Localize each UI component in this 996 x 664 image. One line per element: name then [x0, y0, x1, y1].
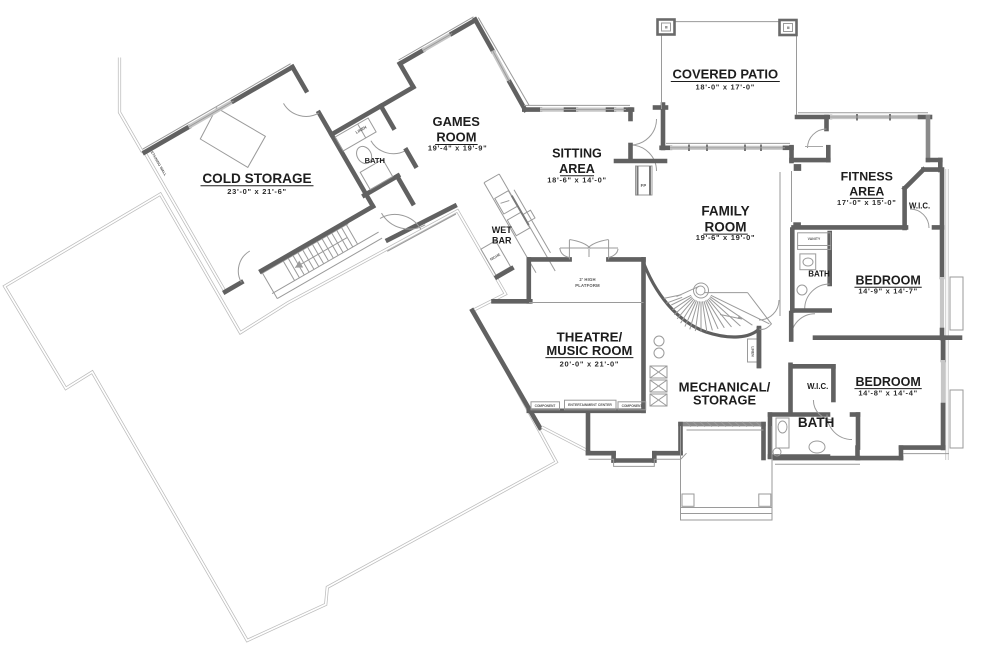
svg-text:COMPONENT: COMPONENT — [535, 404, 556, 408]
svg-text:ENTERTAINMENT CENTER: ENTERTAINMENT CENTER — [568, 403, 612, 407]
svg-text:BEDROOM: BEDROOM — [855, 375, 920, 389]
svg-text:FITNESS: FITNESS — [841, 169, 893, 183]
svg-text:FAMILY: FAMILY — [701, 204, 749, 219]
svg-text:VANITY: VANITY — [808, 237, 821, 241]
svg-text:STORAGE: STORAGE — [693, 393, 757, 408]
svg-text:W.I.C.: W.I.C. — [909, 202, 930, 211]
svg-text:2' HIGH: 2' HIGH — [579, 277, 595, 282]
svg-text:AREA: AREA — [849, 185, 884, 199]
svg-text:14'-8" x 14'-4": 14'-8" x 14'-4" — [858, 388, 918, 397]
svg-text:AREA: AREA — [559, 162, 595, 176]
svg-text:FP: FP — [641, 183, 647, 188]
svg-text:BATH: BATH — [365, 156, 385, 165]
svg-text:COVERED PATIO: COVERED PATIO — [672, 67, 778, 82]
svg-text:18'-6" x 14'-0": 18'-6" x 14'-0" — [547, 176, 607, 185]
svg-text:20'-0" x 21'-0": 20'-0" x 21'-0" — [560, 359, 620, 368]
svg-text:19'-4" x 19'-9": 19'-4" x 19'-9" — [428, 144, 488, 153]
svg-text:WET: WET — [492, 225, 512, 235]
svg-text:BATH: BATH — [808, 270, 830, 279]
svg-text:BEDROOM: BEDROOM — [855, 273, 920, 287]
svg-text:SITTING: SITTING — [552, 147, 602, 161]
svg-text:BATH: BATH — [798, 415, 835, 430]
svg-text:MUSIC ROOM: MUSIC ROOM — [546, 343, 632, 358]
svg-text:BAR: BAR — [492, 236, 512, 246]
svg-text:17'-0" x 15'-0": 17'-0" x 15'-0" — [837, 198, 897, 207]
svg-text:18'-0" x 17'-0": 18'-0" x 17'-0" — [696, 83, 756, 92]
svg-text:14'-9" x 14'-7": 14'-9" x 14'-7" — [858, 287, 918, 296]
svg-text:W.I.C.: W.I.C. — [807, 382, 828, 391]
svg-text:23'-0" x 21'-6": 23'-0" x 21'-6" — [227, 187, 287, 196]
svg-text:19'-6" x 19'-0": 19'-6" x 19'-0" — [696, 233, 756, 242]
svg-text:ROOM: ROOM — [436, 130, 476, 145]
svg-text:LINEN: LINEN — [751, 346, 755, 357]
svg-text:PLATFORM: PLATFORM — [575, 283, 600, 288]
svg-text:COMPONENT: COMPONENT — [622, 404, 643, 408]
svg-text:GAMES: GAMES — [433, 114, 481, 129]
svg-text:COLD STORAGE: COLD STORAGE — [202, 171, 311, 186]
